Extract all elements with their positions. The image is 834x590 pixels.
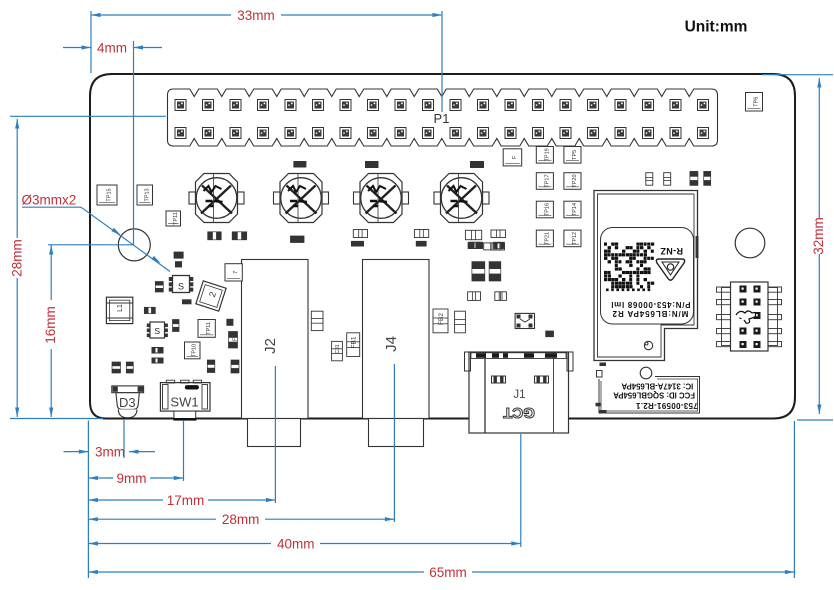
- svg-text:S: S: [178, 282, 184, 292]
- svg-text:TP19: TP19: [544, 148, 550, 161]
- svg-text:32mm: 32mm: [811, 217, 826, 255]
- svg-text:TP13: TP13: [144, 188, 150, 201]
- svg-text:FCC ID: SQGBL654PA: FCC ID: SQGBL654PA: [613, 391, 695, 400]
- svg-text:753-00591-R2.1: 753-00591-R2.1: [635, 401, 697, 410]
- svg-text:TP14: TP14: [572, 203, 578, 216]
- svg-text:TP11: TP11: [173, 212, 179, 225]
- svg-text:TP11: TP11: [206, 322, 212, 335]
- svg-text:SW1: SW1: [170, 395, 198, 410]
- svg-text:J2: J2: [262, 338, 279, 354]
- svg-text:TP21: TP21: [544, 232, 550, 245]
- svg-text:FB1: FB1: [351, 336, 358, 348]
- svg-text:7: 7: [233, 271, 239, 274]
- svg-text:28mm: 28mm: [10, 239, 25, 277]
- svg-text:40mm: 40mm: [277, 537, 315, 552]
- svg-text:Ø3mmx2: Ø3mmx2: [22, 193, 77, 208]
- svg-text:TP6: TP6: [753, 97, 759, 107]
- svg-text:J1: J1: [513, 389, 525, 401]
- svg-text:65mm: 65mm: [429, 565, 467, 580]
- svg-text:J4: J4: [383, 336, 400, 352]
- svg-text:TP16: TP16: [544, 203, 550, 216]
- svg-text:FB2: FB2: [438, 313, 445, 325]
- svg-text:TP15: TP15: [107, 188, 113, 201]
- svg-text:TP17: TP17: [544, 174, 550, 187]
- svg-text:P1: P1: [434, 111, 450, 126]
- svg-text:GCT: GCT: [503, 404, 535, 421]
- svg-text:33mm: 33mm: [237, 8, 275, 23]
- svg-text:TP20: TP20: [572, 174, 578, 187]
- svg-text:4mm: 4mm: [97, 41, 127, 56]
- svg-text:P/N:453-00068 Iml: P/N:453-00068 Iml: [611, 300, 691, 309]
- svg-text:R-NZ: R-NZ: [660, 246, 683, 256]
- svg-text:9mm: 9mm: [117, 471, 147, 486]
- svg-text:C31: C31: [335, 344, 341, 353]
- svg-text:16mm: 16mm: [43, 306, 58, 344]
- svg-text:3mm: 3mm: [95, 445, 125, 460]
- svg-text:D3: D3: [119, 395, 136, 410]
- svg-text:F1: F1: [233, 335, 239, 341]
- svg-text:TP5: TP5: [572, 150, 578, 160]
- svg-text:TP12: TP12: [572, 232, 578, 245]
- svg-text:IC: 3147A-BL654PA: IC: 3147A-BL654PA: [621, 382, 693, 391]
- svg-text:28mm: 28mm: [222, 512, 260, 527]
- svg-text:S: S: [154, 326, 160, 336]
- svg-text:L1: L1: [117, 304, 124, 312]
- svg-text:17mm: 17mm: [167, 493, 205, 508]
- svg-text:M/N:BL654PA R2: M/N:BL654PA R2: [612, 309, 689, 318]
- svg-text:TP10: TP10: [192, 344, 198, 357]
- svg-text:Unit:mm: Unit:mm: [685, 19, 748, 36]
